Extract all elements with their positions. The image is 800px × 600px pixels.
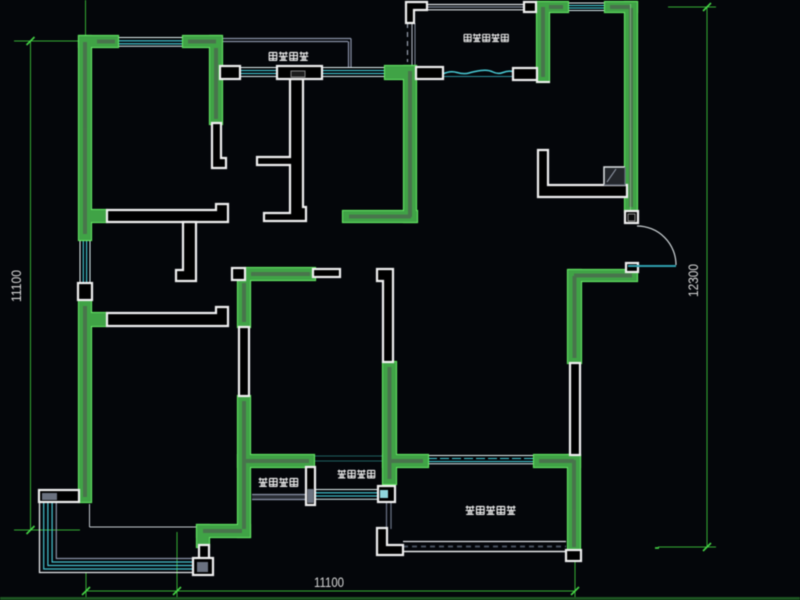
svg-text:11100: 11100 xyxy=(314,574,344,590)
svg-text:12300: 12300 xyxy=(685,264,701,297)
svg-text:11100: 11100 xyxy=(8,270,24,302)
